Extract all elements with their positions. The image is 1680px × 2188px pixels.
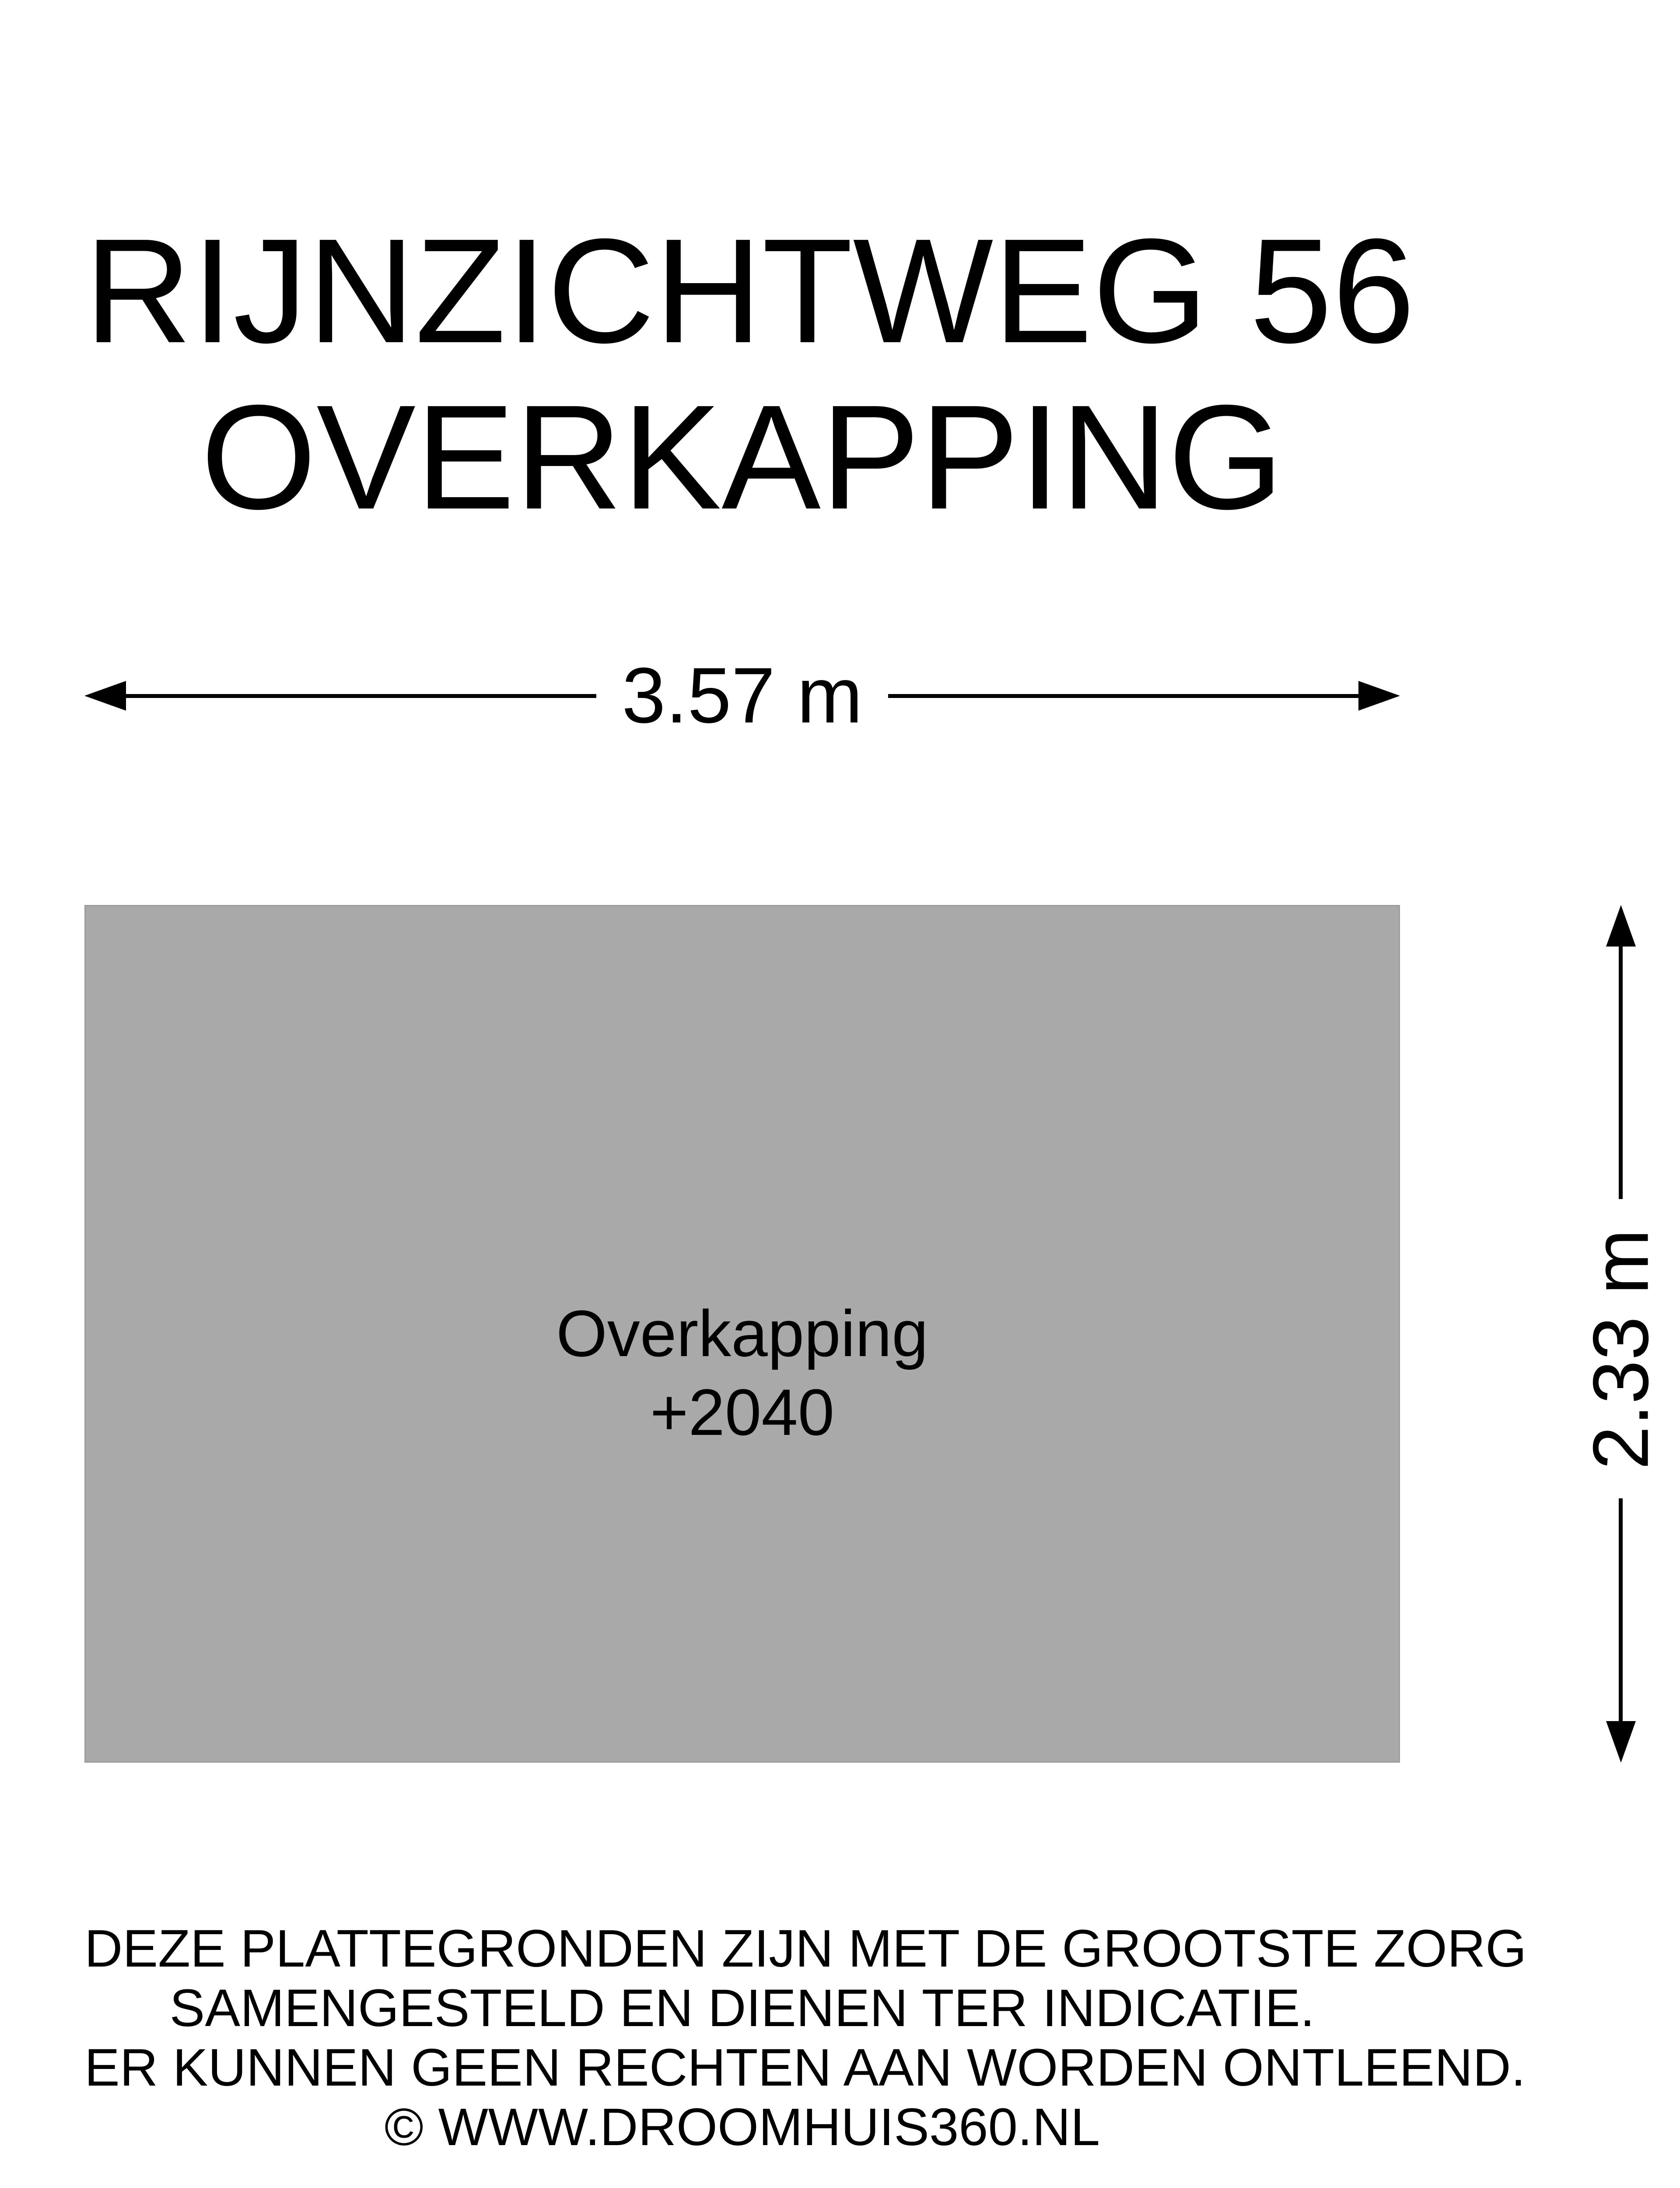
height-dimension: 2.33 m — [1577, 905, 1665, 1763]
disclaimer-line: SAMENGESTELD EN DIENEN TER INDICATIE. — [84, 1978, 1400, 2037]
dimension-line-top — [1619, 943, 1623, 1199]
disclaimer-line: © WWW.DROOMHUIS360.NL — [84, 2097, 1400, 2156]
dimension-line-bottom — [1619, 1498, 1623, 1721]
title-line-2: OVERKAPPING — [84, 374, 1400, 540]
dimension-line-right — [888, 694, 1358, 698]
disclaimer-line: DEZE PLATTEGRONDEN ZIJN MET DE GROOTSTE … — [84, 1918, 1400, 1978]
room-name: Overkapping — [86, 1294, 1399, 1373]
room-elevation: +2040 — [86, 1373, 1399, 1452]
arrowhead-left-icon — [84, 681, 126, 711]
floorplan-title: RIJNZICHTWEG 56 OVERKAPPING — [84, 208, 1400, 540]
arrowhead-up-icon — [1606, 905, 1636, 947]
width-dimension-label: 3.57 m — [622, 652, 862, 740]
width-dimension: 3.57 m — [84, 652, 1400, 740]
room-rect: Overkapping +2040 — [84, 905, 1400, 1763]
height-dimension-label: 2.33 m — [1576, 1227, 1666, 1472]
disclaimer-line: ER KUNNEN GEEN RECHTEN AAN WORDEN ONTLEE… — [84, 2037, 1400, 2097]
room-label: Overkapping +2040 — [86, 1294, 1399, 1452]
floorplan-page: RIJNZICHTWEG 56 OVERKAPPING 3.57 m Overk… — [0, 0, 1680, 2188]
title-line-1: RIJNZICHTWEG 56 — [84, 208, 1400, 374]
arrowhead-down-icon — [1606, 1721, 1636, 1763]
disclaimer: DEZE PLATTEGRONDEN ZIJN MET DE GROOTSTE … — [84, 1918, 1400, 2156]
dimension-line-left — [126, 694, 596, 698]
arrowhead-right-icon — [1358, 681, 1400, 711]
